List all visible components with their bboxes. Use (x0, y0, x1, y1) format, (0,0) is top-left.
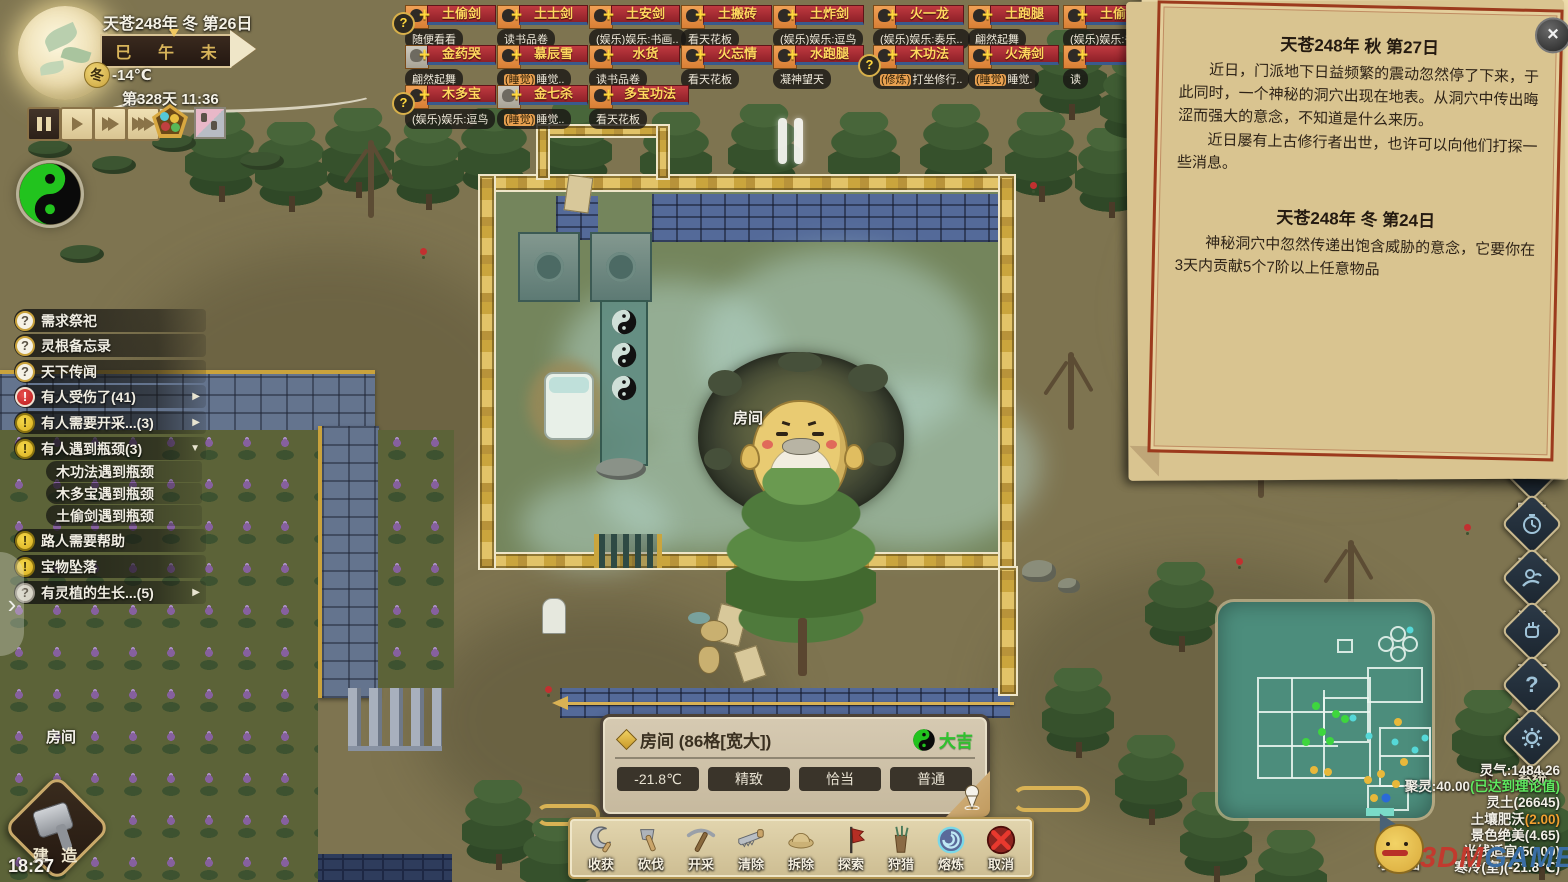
plus-icon: + (419, 86, 430, 105)
mine-tool-button[interactable]: 开采 (677, 824, 725, 873)
stat-line: 土壤肥沃(2.00) (1405, 812, 1560, 828)
cancel-tool-button[interactable]: 取消 (977, 824, 1025, 873)
quiver-arrows-icon (885, 824, 917, 856)
plus-icon: + (982, 6, 993, 25)
plus-icon: + (887, 46, 898, 65)
red-flower (1236, 558, 1243, 565)
time-slot: 午 (158, 39, 174, 63)
explore-tool-button[interactable]: 探索 (827, 824, 875, 873)
character-name[interactable]: 火一龙 (895, 5, 964, 25)
cancel-icon (985, 824, 1017, 856)
alert-row[interactable]: !有人遇到瓶颈(3)▼ (14, 437, 206, 460)
compound-gate (594, 534, 662, 568)
hunt-tool-button[interactable]: 狩猎 (877, 824, 925, 873)
pause-indicator-icon (778, 118, 803, 164)
flag-icon (835, 824, 867, 856)
luck-label: 大吉 (939, 727, 973, 752)
stone-fence (348, 688, 442, 751)
temperature-overlay-icon[interactable] (194, 107, 226, 139)
rock (1058, 578, 1080, 593)
plus-icon: + (695, 46, 706, 65)
outdoor-temperature: -14℃ (112, 66, 152, 84)
room-quality-badge: 精致 (708, 767, 790, 791)
red-flower (545, 686, 552, 693)
bush (60, 245, 104, 263)
sect-banner (518, 232, 580, 302)
question-icon: ? (15, 336, 35, 356)
yinyang-icon (611, 342, 637, 368)
pine-tree (1145, 562, 1217, 646)
character-name[interactable]: 木多宝 (427, 85, 496, 105)
saw-icon (735, 824, 767, 856)
sect-banner (590, 232, 652, 302)
alert-sub-row[interactable]: 木功法遇到瓶颈 (46, 461, 202, 482)
event-body: 近日，门派地下日益频繁的震动忽然停了下来，于此同时，一个神秘的洞穴出现在地表。从… (1178, 59, 1539, 136)
character-name[interactable]: 多宝功法 (611, 85, 689, 105)
site-watermark: 3DMGAME (1420, 842, 1568, 875)
character-status: 看天花板 (589, 109, 647, 129)
character-status: 读 (1063, 69, 1088, 89)
alert-red-icon: ! (15, 387, 35, 407)
plus-icon: + (419, 6, 430, 25)
event-title: 天苍248年 秋 第27日 (1179, 28, 1539, 61)
time-marker-icon (169, 29, 179, 37)
fengshui-toggle-button[interactable] (19, 163, 81, 225)
dead-tree (368, 140, 374, 218)
cave-room-label: 房间 (733, 407, 763, 428)
game-screen: 房间 天苍248年 冬 第26日 巳 午 未 冬 -14℃ 第328天 11:3… (0, 0, 1568, 882)
fengshui-luck-icon (913, 729, 935, 751)
dead-tree (1068, 352, 1074, 430)
character-name[interactable]: 土偷剑 (427, 5, 496, 25)
plus-icon: + (419, 46, 430, 65)
character-name[interactable]: 土士剑 (519, 5, 588, 25)
character-name[interactable]: 慕辰雪 (519, 45, 588, 65)
pine-tree (322, 108, 394, 192)
character-status: (娱乐)娱乐:逗鸟 (405, 109, 495, 129)
character-name[interactable]: 火忘情 (703, 45, 772, 65)
stone-path-vertical (318, 426, 379, 698)
selection-title: 房间 (86格[宽大]) (640, 727, 771, 752)
pine-tree (392, 120, 464, 204)
event-title: 天苍248年 冬 第24日 (1176, 201, 1536, 234)
room-size-badge: 恰当 (799, 767, 881, 791)
urn-item (698, 646, 720, 674)
bush (28, 140, 72, 158)
question-icon: ? (15, 362, 35, 382)
question-icon: ? (15, 311, 35, 331)
water-puddle (688, 612, 710, 624)
room-grade-badge: 普通 (890, 767, 972, 791)
plus-icon: + (887, 6, 898, 25)
plus-icon: + (787, 46, 798, 65)
bed (544, 372, 594, 440)
character-name[interactable]: 水货 (611, 45, 680, 65)
blue-brick-path (652, 194, 1000, 242)
annex-wall (538, 126, 548, 178)
selection-info-panel: 房间 (86格[宽大]) 大吉 -21.8℃ 精致 恰当 普通 (600, 714, 990, 817)
bush (240, 152, 284, 170)
character-status: (睡觉)睡觉. (968, 69, 1039, 89)
room-floating-label: 房间 (46, 726, 76, 747)
talisman-paper (564, 174, 594, 213)
plus-icon: + (511, 6, 522, 25)
character-name[interactable]: 金药哭 (427, 45, 496, 65)
alert-yellow-icon: ! (15, 439, 35, 459)
alert-row[interactable]: ?灵根备忘录 (14, 334, 206, 357)
yinyang-banner-column (600, 300, 648, 466)
alert-row[interactable]: !宝物坠落 (14, 555, 206, 578)
stat-line: 聚灵:40.00(已达到理论值) (1405, 779, 1560, 795)
plus-icon: + (982, 46, 993, 65)
decor-gold-curl (1012, 786, 1090, 812)
rename-icon[interactable] (616, 729, 637, 750)
room-temperature-badge: -21.8℃ (617, 767, 699, 791)
clock-icon (1520, 512, 1544, 536)
character-name[interactable]: 土安剑 (611, 5, 680, 25)
question-bubble-icon[interactable]: ? (858, 54, 881, 77)
decor-gold-line (566, 702, 1014, 705)
plus-icon: + (603, 86, 614, 105)
alert-row[interactable]: !有人受伤了(41)▶ (14, 385, 206, 408)
character-name[interactable]: 木功法 (895, 45, 964, 65)
pine-tree (1255, 830, 1327, 882)
character-status: 看天花板 (681, 69, 739, 89)
sickle-icon (585, 824, 617, 856)
wall-extension (1000, 568, 1016, 694)
pine-tree (1042, 668, 1114, 752)
sect-member-icon (1520, 566, 1544, 590)
question-bubble-icon[interactable]: ? (392, 12, 415, 35)
time-bar-arrow-icon (230, 30, 256, 68)
yinyang-icon (611, 309, 637, 335)
character-name[interactable]: 火涛剑 (990, 45, 1059, 65)
help-question-icon: ? (1525, 672, 1538, 698)
character-name[interactable]: 土搬砖 (703, 5, 772, 25)
banner-base (596, 458, 646, 480)
divider (615, 757, 975, 759)
bush (92, 156, 136, 174)
pine-tree (1115, 735, 1187, 819)
plus-icon: + (603, 6, 614, 25)
stat-line: 灵土(26645) (1405, 795, 1560, 811)
stat-line: 灵气:1484.26 (1405, 763, 1560, 779)
chop-tool-button[interactable]: 砍伐 (627, 824, 675, 873)
alert-row[interactable]: !有人需要开采...(3)▶ (14, 411, 206, 434)
red-flower (1464, 524, 1471, 531)
alert-row[interactable]: !路人需要帮助 (14, 529, 206, 552)
compound-wall-right (1000, 176, 1014, 568)
pause-button[interactable] (27, 107, 61, 141)
event-log-panel: 天苍248年 秋 第27日 近日，门派地下日益频繁的震动忽然停了下来，于此同时，… (1131, 0, 1568, 480)
monument (542, 598, 566, 634)
compound-wall-top (480, 176, 1014, 190)
axe-icon (635, 824, 667, 856)
plus-icon: + (1077, 46, 1088, 65)
sidebar-collapse-handle[interactable]: › (0, 552, 24, 656)
character-name[interactable]: 金七杀 (519, 85, 588, 105)
time-slot: 未 (201, 39, 217, 63)
annex-wall (658, 126, 668, 178)
character-status: 凝神望天 (773, 69, 831, 89)
event-body: 近日屡有上古修行者出世，也许可以向他们打探一些消息。 (1177, 129, 1538, 183)
play-button[interactable] (60, 107, 94, 141)
compound-wall-left (480, 176, 494, 568)
character-name[interactable]: 土炸剑 (795, 5, 864, 25)
hand-icon (1520, 619, 1544, 643)
plus-icon: + (1077, 6, 1088, 25)
close-icon[interactable]: × (1535, 17, 1568, 54)
crop-field (378, 430, 454, 688)
plus-icon: + (695, 6, 706, 25)
clear-tool-button[interactable]: 清除 (727, 824, 775, 873)
character-status: (修炼)打坐修行.. (873, 69, 969, 89)
yinyang-icon (611, 375, 637, 401)
time-slot: 巳 (115, 39, 131, 63)
character-name[interactable]: 水跑腿 (795, 45, 864, 65)
character-name[interactable]: 土跑腿 (990, 5, 1059, 25)
realtime-clock: 18:27 (8, 856, 54, 877)
gear-icon (1520, 726, 1544, 750)
alert-row[interactable]: ?有灵植的生长...(5)▶ (14, 581, 206, 604)
red-flower (1030, 182, 1037, 189)
straw-hat-icon (785, 824, 817, 856)
locate-pin-icon[interactable] (963, 784, 981, 810)
plus-icon: + (511, 46, 522, 65)
alert-sub-row[interactable]: 木多宝遇到瓶颈 (46, 483, 202, 504)
event-body: 神秘洞穴中忽然传递出饱含威胁的意念，它要你在3天内贡献5个7阶以上任意物品 (1174, 232, 1535, 286)
minimap[interactable] (1218, 602, 1432, 818)
alert-yellow-icon: ! (15, 531, 35, 551)
red-flower (420, 248, 427, 255)
decor-gold-arrow (552, 696, 568, 710)
harvest-tool-button[interactable]: 收获 (577, 824, 625, 873)
alert-row[interactable]: ?天下传闻 (14, 360, 206, 383)
character-status: (睡觉)睡觉.. (497, 109, 571, 129)
question-bubble-icon[interactable]: ? (392, 92, 415, 115)
basket-item (700, 620, 728, 642)
swirl-icon (935, 824, 967, 856)
command-toolbar: 收获 砍伐 开采 清除 拆除 探索 狩猎 熔炼 (568, 817, 1034, 879)
time-of-day-bar: 巳 午 未 (100, 34, 232, 68)
pine-tree (1005, 112, 1077, 196)
season-badge: 冬 (84, 62, 110, 88)
alert-yellow-icon: ! (15, 413, 35, 433)
plus-icon: + (511, 86, 522, 105)
fast-forward-button[interactable] (93, 107, 127, 141)
plus-icon: + (603, 46, 614, 65)
alert-sub-row[interactable]: 土偷剑遇到瓶颈 (46, 505, 202, 526)
large-pine-tree (726, 468, 876, 674)
pickaxe-icon (685, 824, 717, 856)
rock (1022, 560, 1056, 582)
plus-icon: + (787, 6, 798, 25)
smelt-tool-button[interactable]: 熔炼 (927, 824, 975, 873)
demolish-tool-button[interactable]: 拆除 (777, 824, 825, 873)
alert-row[interactable]: ?需求祭祀 (14, 309, 206, 332)
